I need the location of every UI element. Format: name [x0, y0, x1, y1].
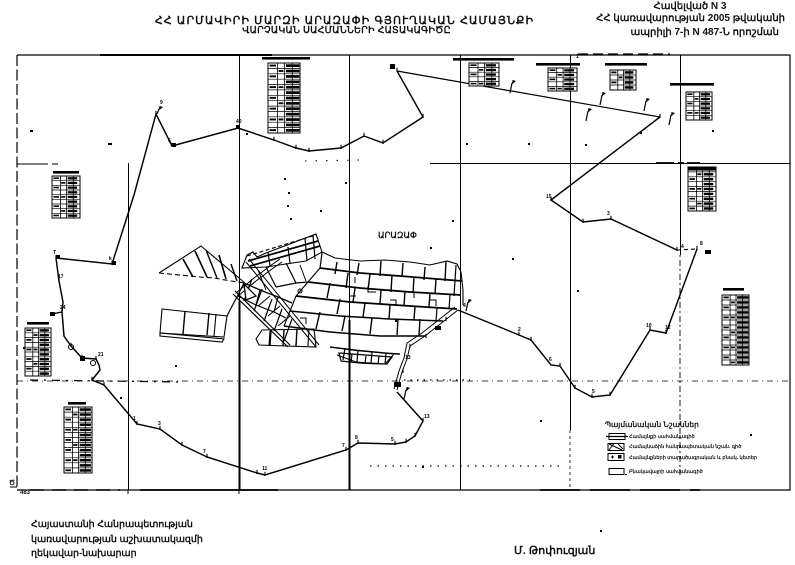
svg-text:6: 6	[168, 138, 171, 144]
svg-text:13: 13	[405, 355, 411, 361]
svg-text:21: 21	[98, 352, 104, 358]
svg-text:24: 24	[60, 305, 66, 311]
svg-text:40: 40	[236, 119, 242, 125]
svg-text:3: 3	[158, 421, 161, 427]
svg-text:T: T	[53, 250, 56, 256]
svg-text:5: 5	[391, 437, 394, 443]
svg-text:8: 8	[355, 435, 358, 441]
svg-text:15: 15	[546, 194, 552, 200]
svg-text:4: 4	[463, 303, 466, 309]
svg-text:12: 12	[665, 325, 671, 331]
svg-text:k: k	[109, 256, 112, 262]
svg-text:7: 7	[203, 449, 206, 455]
svg-text:8: 8	[700, 241, 703, 247]
svg-text:5: 5	[592, 389, 595, 395]
svg-text:9: 9	[160, 100, 163, 106]
svg-text:2: 2	[518, 327, 521, 333]
svg-text:1: 1	[133, 416, 136, 422]
svg-text:4: 4	[681, 244, 684, 250]
svg-text:7: 7	[342, 443, 345, 449]
svg-text:6: 6	[549, 357, 552, 363]
svg-text:13: 13	[424, 414, 430, 420]
svg-text:11: 11	[262, 466, 268, 472]
svg-text:1: 1	[576, 54, 579, 60]
svg-text:10: 10	[646, 323, 652, 329]
svg-text:17: 17	[58, 274, 64, 280]
svg-text:3: 3	[607, 211, 610, 217]
